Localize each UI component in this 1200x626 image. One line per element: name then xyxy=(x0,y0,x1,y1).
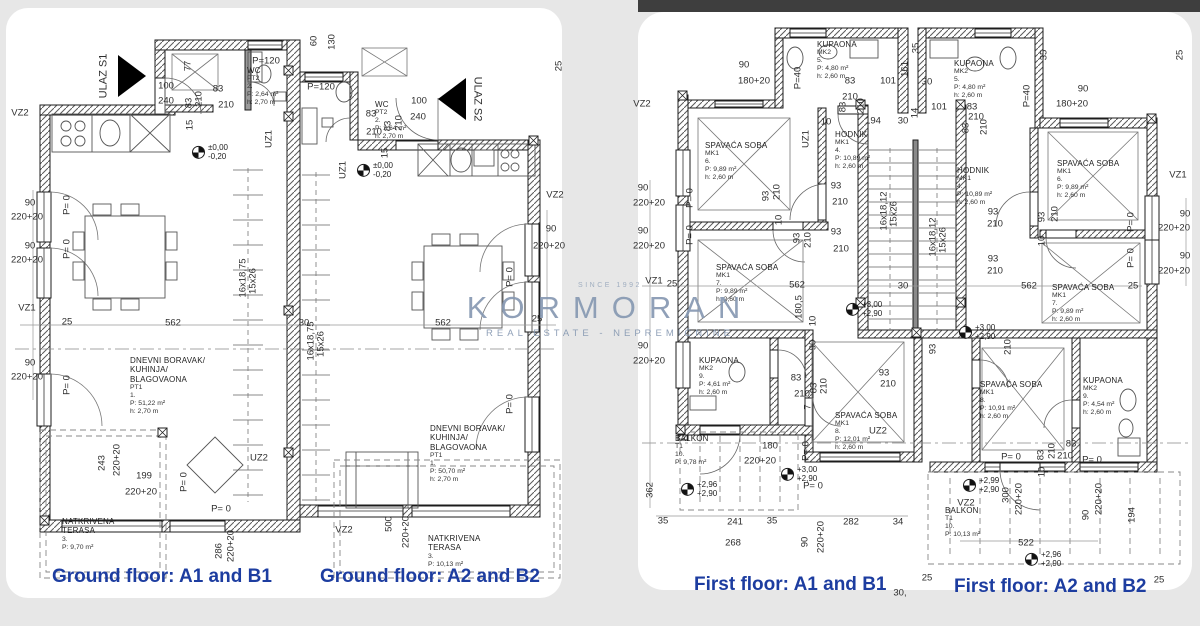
floor-caption: First floor: A1 and B1 xyxy=(694,574,886,596)
floor-caption: First floor: A2 and B2 xyxy=(954,576,1146,598)
watermark-tagline: REAL ESTATE - NEPREMIČNINE xyxy=(445,328,775,339)
floor-plan-screenshot: VZ210024083210778321015P=12060130P=12010… xyxy=(0,0,1200,626)
watermark-since: SINCE 1992 xyxy=(445,282,775,289)
kormoran-watermark: SINCE 1992 KORMORAN REAL ESTATE - NEPREM… xyxy=(445,282,775,339)
floor-caption: Ground floor: A1 and B1 xyxy=(52,566,272,588)
floor-caption: Ground floor: A2 and B2 xyxy=(320,566,540,588)
watermark-brand: KORMORAN xyxy=(445,290,775,326)
